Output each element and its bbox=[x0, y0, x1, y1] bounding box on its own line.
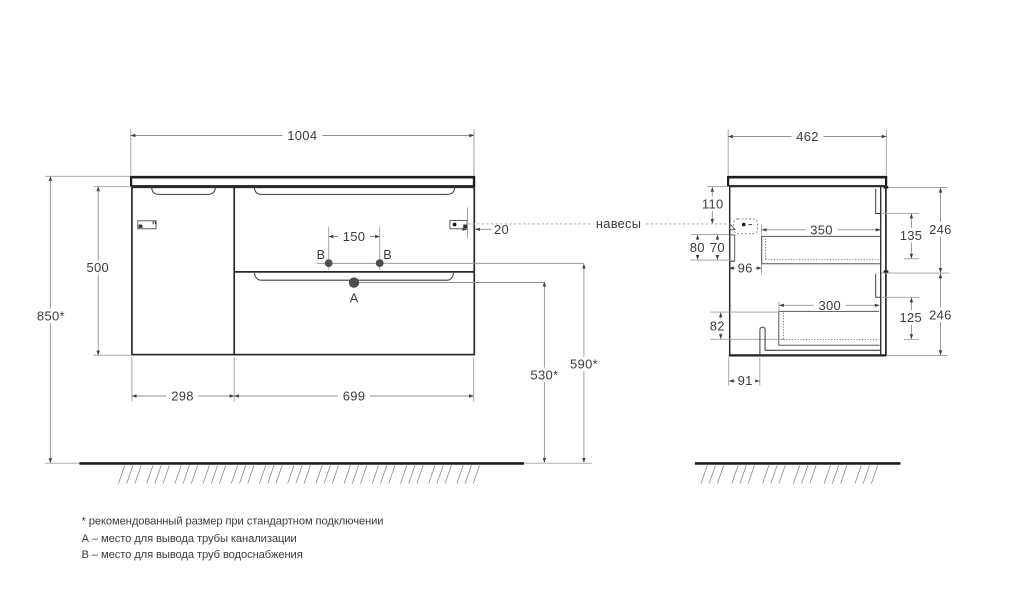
svg-text:150: 150 bbox=[343, 229, 366, 244]
svg-text:300: 300 bbox=[819, 298, 842, 313]
svg-text:246: 246 bbox=[929, 308, 952, 323]
svg-text:91: 91 bbox=[738, 373, 753, 388]
svg-text:* рекомендованный размер при с: * рекомендованный размер при стандартном… bbox=[82, 516, 384, 528]
svg-text:1004: 1004 bbox=[287, 128, 317, 143]
svg-text:80: 80 bbox=[690, 240, 705, 255]
svg-text:298: 298 bbox=[171, 389, 194, 404]
svg-text:навесы: навесы bbox=[596, 216, 641, 231]
svg-text:А – место для вывода трубы кан: А – место для вывода трубы канализации bbox=[82, 533, 297, 545]
svg-text:В: В bbox=[317, 248, 325, 262]
svg-text:20: 20 bbox=[494, 222, 509, 237]
svg-text:82: 82 bbox=[710, 319, 725, 334]
svg-text:96: 96 bbox=[738, 260, 753, 275]
svg-text:350: 350 bbox=[810, 223, 833, 238]
svg-text:А: А bbox=[350, 290, 359, 305]
svg-text:462: 462 bbox=[796, 129, 819, 144]
svg-text:В: В bbox=[383, 248, 391, 262]
svg-text:699: 699 bbox=[343, 389, 366, 404]
svg-text:110: 110 bbox=[702, 197, 724, 212]
svg-text:500: 500 bbox=[87, 260, 110, 275]
svg-text:530*: 530* bbox=[530, 368, 558, 383]
svg-text:850*: 850* bbox=[37, 309, 65, 324]
svg-text:125: 125 bbox=[900, 310, 923, 325]
svg-text:В – место для вывода труб водо: В – место для вывода труб водоснабжения bbox=[82, 549, 303, 561]
svg-text:70: 70 bbox=[710, 240, 725, 255]
svg-text:590*: 590* bbox=[570, 357, 598, 372]
svg-text:246: 246 bbox=[929, 222, 952, 237]
svg-text:135: 135 bbox=[900, 228, 923, 243]
